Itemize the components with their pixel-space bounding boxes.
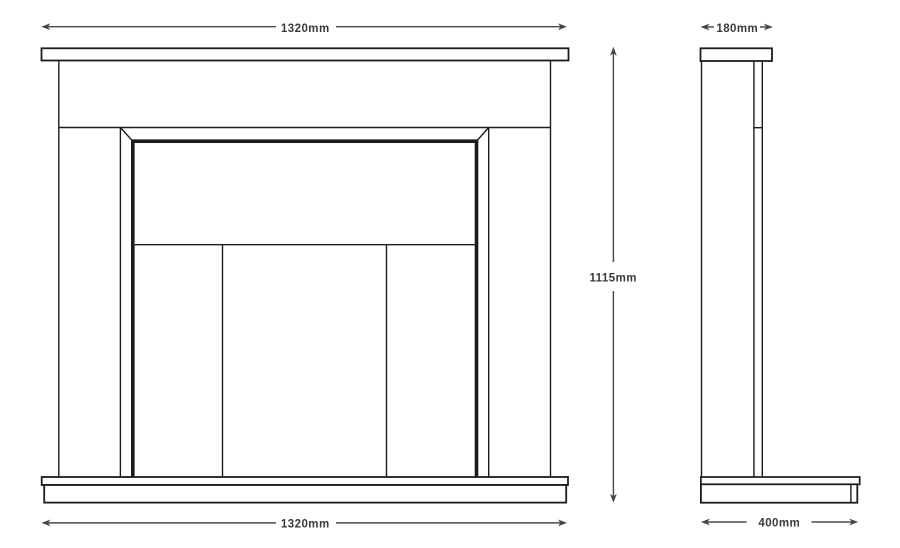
- svg-text:180mm: 180mm: [716, 23, 758, 35]
- svg-text:1320mm: 1320mm: [281, 23, 330, 35]
- svg-text:1320mm: 1320mm: [281, 518, 330, 530]
- svg-text:1115mm: 1115mm: [589, 272, 636, 284]
- svg-text:400mm: 400mm: [758, 518, 800, 530]
